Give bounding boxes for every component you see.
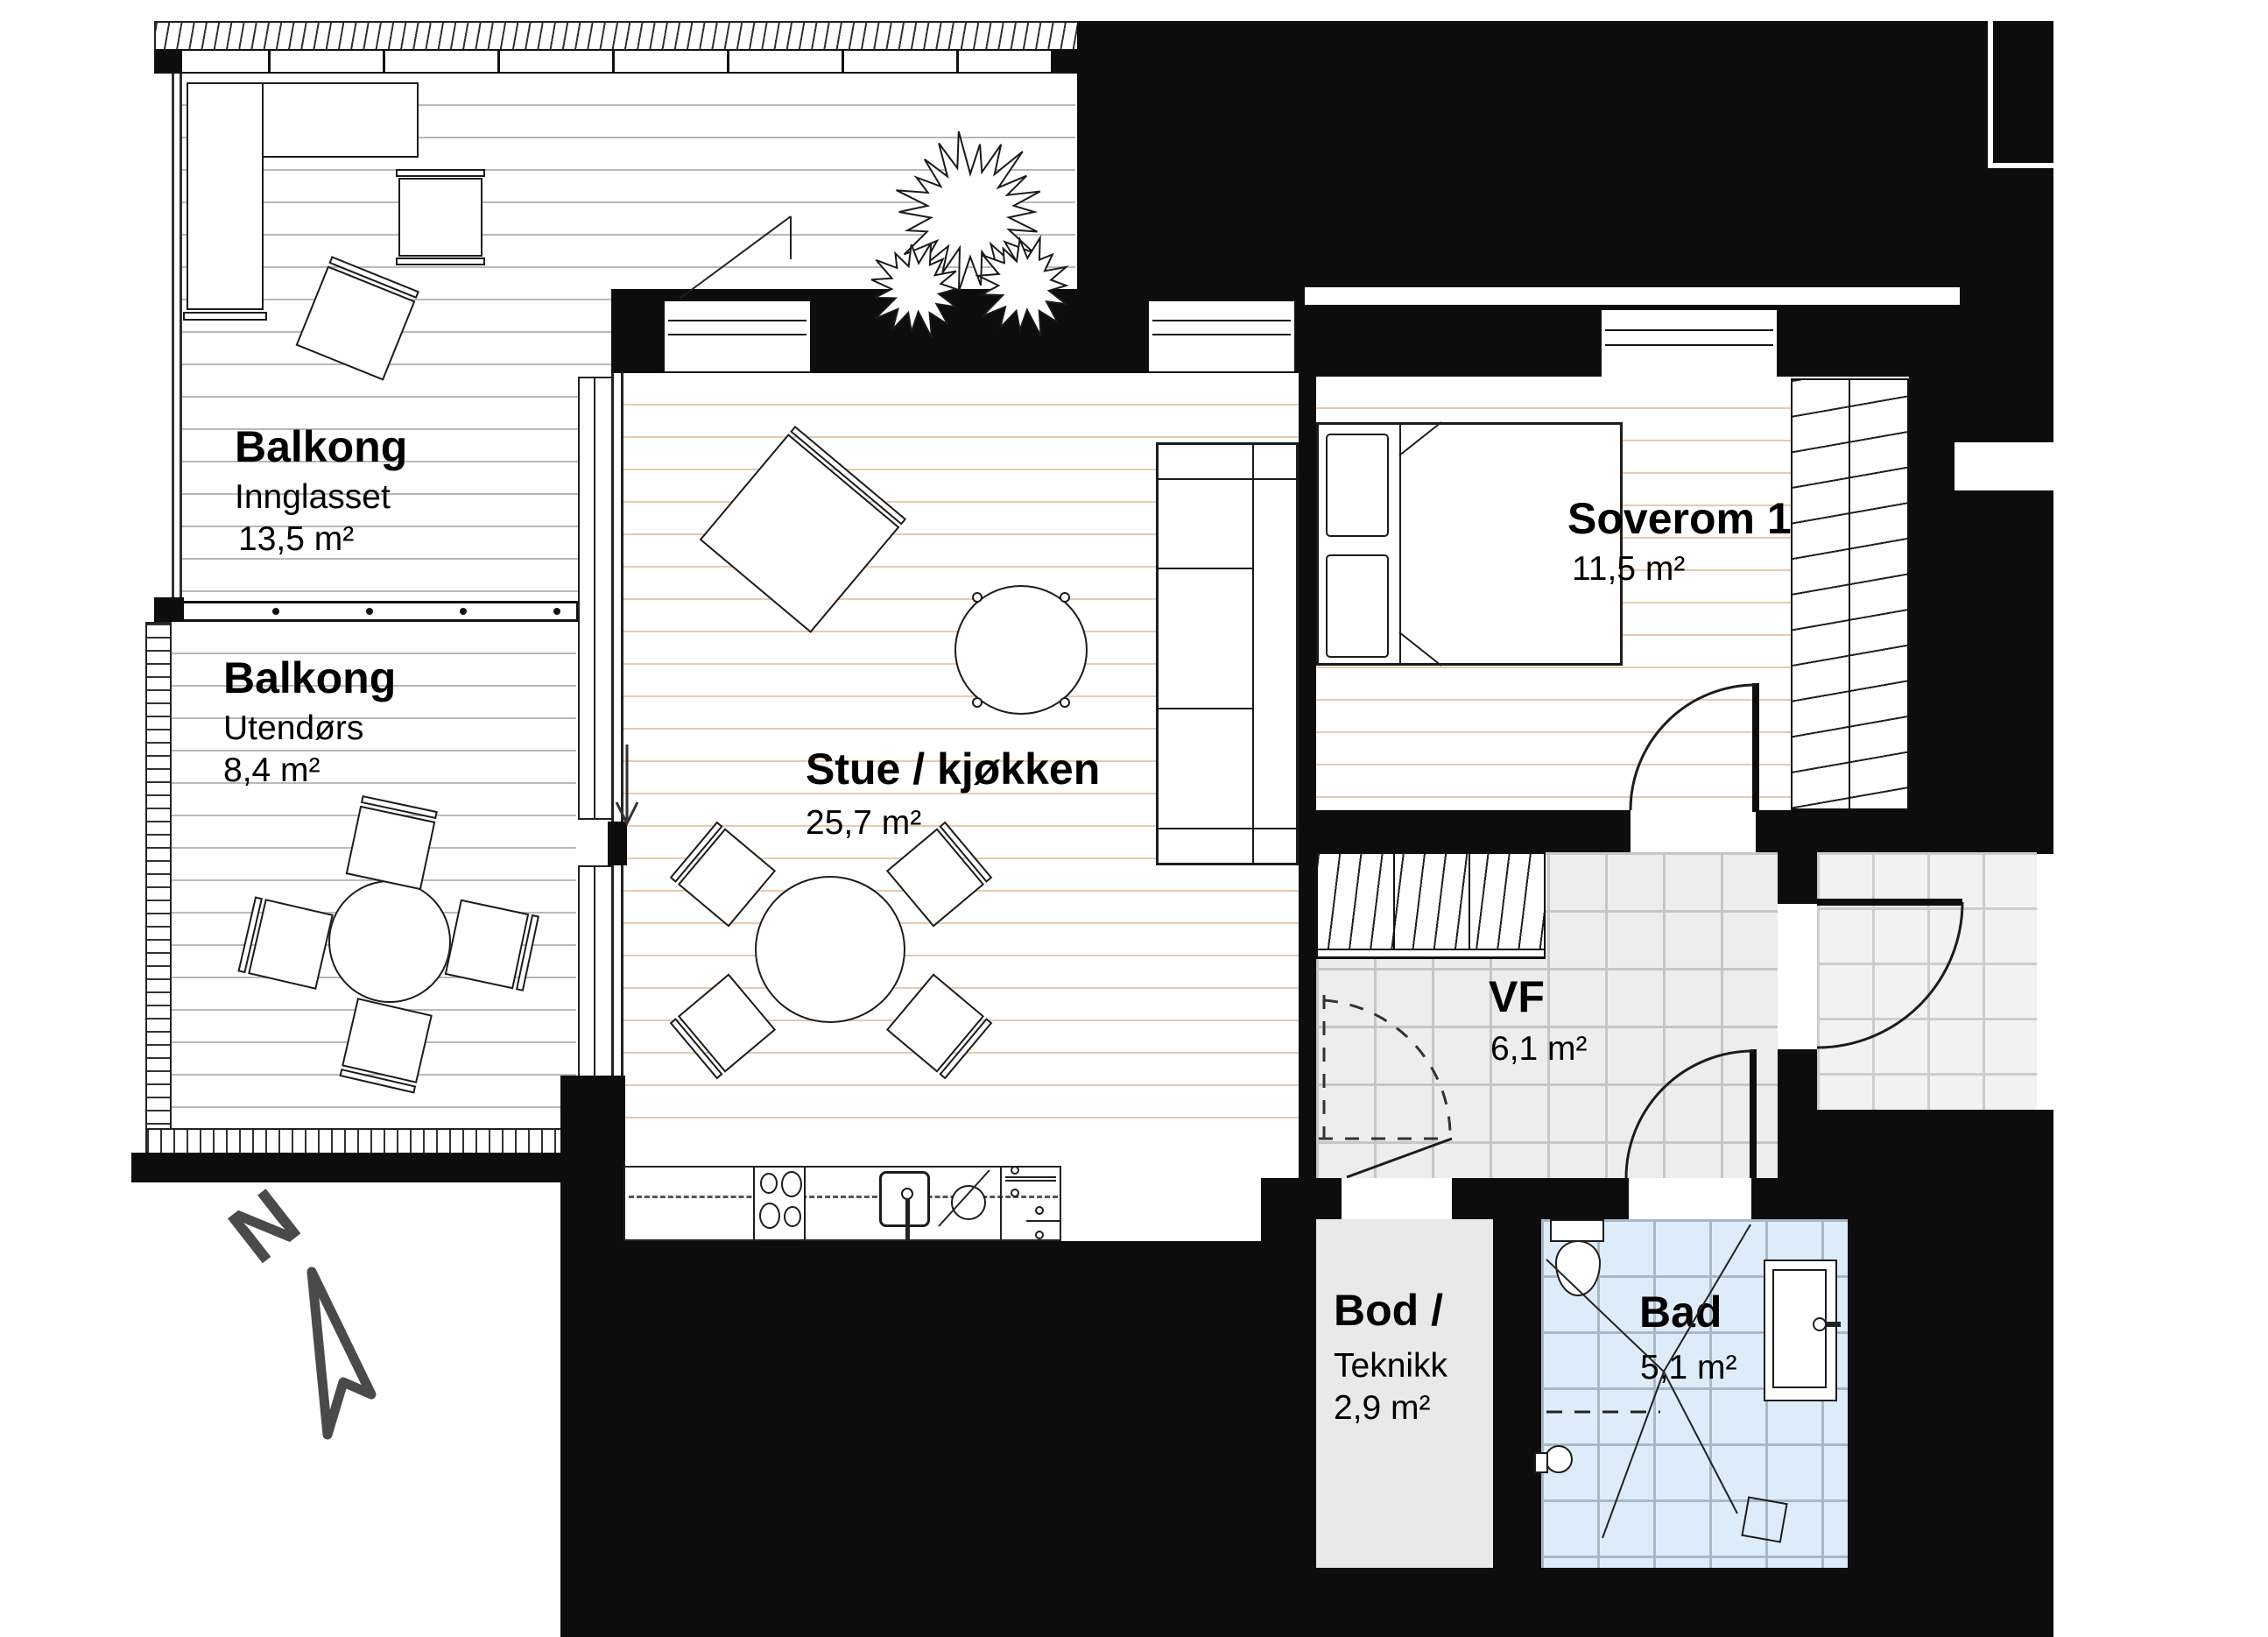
faucet-stem [905,1198,910,1244]
balcony-table [398,178,482,257]
table-foot [1060,592,1070,603]
wardrobe-divider [1849,380,1850,808]
hinge-dot [1011,1166,1019,1175]
sofa-armrest-top [1159,478,1296,480]
vf-garderobe-closet [1316,852,1546,959]
hinge-line [1005,1176,1056,1182]
porch-floor [1817,852,2037,1110]
label-bod-type: Teknikk [1334,1349,1447,1385]
sofa-back-line [1252,445,1254,863]
cooktop [753,1166,806,1241]
duvet-edge [1399,425,1401,663]
wall-stue-soverom [1299,373,1316,1178]
burner [781,1171,802,1197]
stue-side-table [954,585,1088,715]
sofa-seat-divider [1159,708,1252,709]
burner [784,1206,801,1227]
label-bad-area: 5,1 m² [1640,1351,1737,1387]
stue-dining-table [755,876,905,1023]
sofa-end-rail [183,312,267,321]
wall-mass-below-stue [623,1241,1261,1637]
label-soverom-area: 11,5 m² [1572,552,1685,588]
balcony-outdoor-bottom-railing [145,1128,623,1154]
railing-end-cap-right [1051,51,1077,72]
entrance-door-leaf [1817,899,1962,906]
facade-line-strip [1305,287,1960,305]
pillow [1326,554,1389,658]
vanity-faucet-stem [1825,1322,1841,1327]
hinge-dot [1035,1206,1044,1215]
stue-left-wall-glazing [611,373,623,1153]
soverom-wardrobe [1791,378,1909,810]
bad-right-wall [1848,1178,1887,1568]
soverom-window [1600,308,1778,385]
label-balkong-innglasset-name: Balkong [235,424,407,470]
balcony-divider-railing [180,601,579,622]
wall-vf-bottom-a [1261,1178,1342,1219]
balcony-top-hatch-strip [154,21,1079,51]
balcony-outdoor-bottom-wall [131,1153,623,1182]
toilet-tank [1550,1219,1604,1242]
label-balkong-utendors-area: 8,4 m² [223,753,320,789]
sofa-seat-divider [1159,568,1252,569]
bod-left-wall [1261,1219,1316,1568]
outdoor-table [328,880,451,1003]
wall-mass-bottom-right [1887,1110,2053,1637]
sliding-door-panel-upper [578,377,613,820]
counter-dashed-line [629,1196,1058,1198]
table-foot [972,592,983,603]
wall-vf-bottom-c [1751,1178,1848,1219]
closet-front-rail [1318,949,1544,959]
closet-divider [1469,854,1470,957]
stue-bottom-left-corner-column [560,1076,625,1637]
wall-mass-porch-bottom [1817,1110,1887,1178]
entrance-doorway [1778,904,1817,1049]
kitchen-counter [623,1166,1061,1241]
label-soverom-name: Soverom 1 [1567,496,1792,542]
right-column-notch [1955,442,2053,490]
label-balkong-innglasset-area: 13,5 m² [238,522,354,558]
balcony-divider-post [154,597,184,624]
floor-plan: N Balkong Innglasset 13,5 m² Balkong Ute… [0,0,2268,1637]
wall-vf-bottom-b [1452,1178,1629,1219]
dishwasher-symbol [951,1185,986,1220]
label-vf-name: VF [1489,974,1545,1020]
stue-window-right [1147,300,1296,373]
panel-line [594,867,595,1076]
pillow [1326,434,1389,537]
floor-drain [1741,1496,1787,1542]
panel-line [594,378,595,818]
label-stue-name: Stue / kjøkken [806,746,1100,793]
hinge-dot [1011,1189,1019,1197]
label-balkong-utendors-type: Utendørs [223,711,363,747]
table-foot [1060,697,1070,708]
washer-connection [1545,1445,1573,1473]
label-bod-name: Bod / [1334,1288,1443,1334]
label-bod-area: 2,9 m² [1334,1391,1431,1427]
facade-notch-line-v [1988,21,1993,165]
label-stue-area: 25,7 m² [806,806,921,842]
table-foot [972,697,983,708]
sliding-door-mid-post [608,822,627,865]
label-balkong-innglasset-type: Innglasset [235,480,391,516]
north-label: N [212,1171,317,1282]
sliding-door-panel-lower [578,865,613,1077]
bottom-wall-band [1261,1568,2053,1637]
label-balkong-utendors-name: Balkong [223,655,396,702]
burner [759,1203,780,1229]
soverom-doorway [1631,810,1756,852]
washer-connection-box [1534,1452,1548,1473]
bad-door-leaf [1750,1049,1757,1178]
bad-doorway [1629,1178,1751,1219]
railing-end-cap-left [156,51,182,72]
bod-bad-separator-wall [1493,1219,1541,1568]
bathroom-vanity [1764,1260,1837,1401]
balcony-top-railing [154,49,1079,74]
facade-notch-line-h [1988,163,2053,168]
sofa-armrest-bottom [1159,828,1296,829]
stue-window-left [663,300,812,373]
balcony-outdoor-left-railing [145,622,172,1130]
bod-doorway [1342,1178,1452,1219]
bed [1316,422,1623,666]
label-vf-area: 6,1 m² [1490,1032,1588,1068]
stue-sofa [1156,442,1299,865]
table-rail-top [396,169,485,177]
kitchen-sink [879,1171,930,1227]
soverom-door-leaf [1752,683,1759,812]
hinge-line [1026,1220,1061,1222]
burner [760,1173,778,1194]
closet-divider [1393,854,1395,957]
table-rail-bottom [396,258,485,265]
north-needle-icon [312,1272,371,1435]
counter-divider [1000,1168,1002,1239]
hinge-dot [1035,1231,1044,1239]
balcony-glazed-left-wall [172,74,182,604]
balcony-corner-sofa-leg [187,82,264,310]
label-bad-name: Bad [1639,1289,1722,1336]
